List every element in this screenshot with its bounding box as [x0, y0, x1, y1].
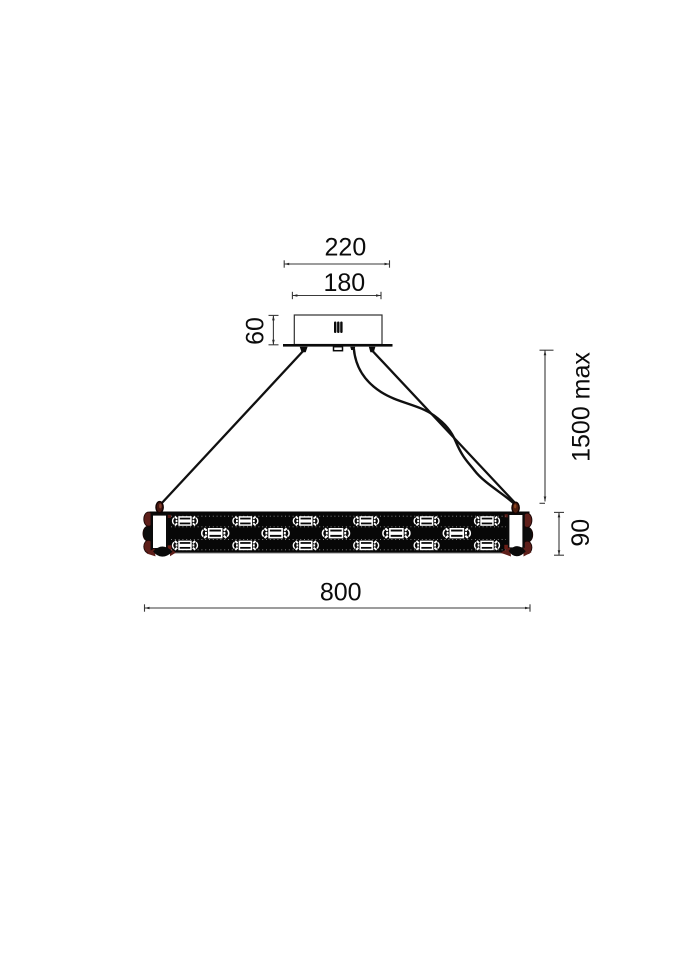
svg-text:1500 max: 1500 max: [567, 352, 595, 462]
svg-text:180: 180: [323, 269, 365, 297]
svg-text:60: 60: [242, 317, 270, 345]
svg-text:90: 90: [567, 519, 595, 547]
svg-text:220: 220: [325, 234, 367, 262]
svg-text:800: 800: [320, 579, 362, 607]
